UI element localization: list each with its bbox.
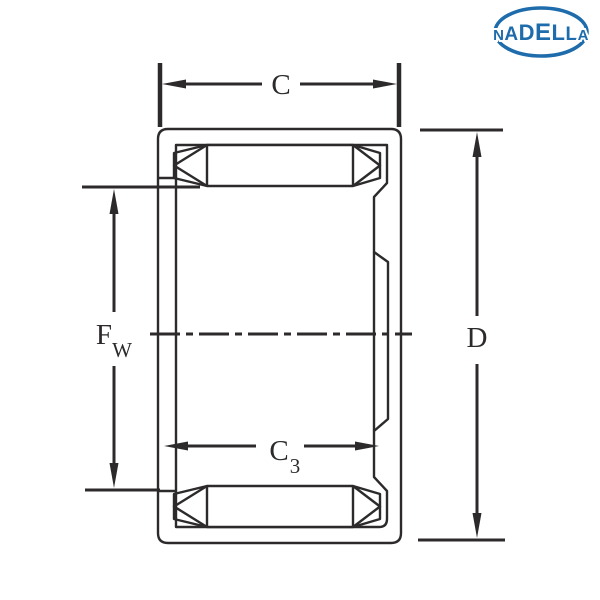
needle-roller-bottom — [174, 486, 380, 527]
bearing-cup-section — [158, 129, 401, 543]
roller-right-end — [353, 486, 380, 527]
dimension-label-c3-sub: 3 — [290, 454, 301, 478]
roller-right-end — [353, 145, 380, 186]
roller-body — [207, 145, 353, 186]
roller-left-end — [174, 145, 207, 186]
arrow-right-icon — [373, 80, 397, 89]
dimension-label-fw: F — [96, 319, 112, 351]
dimension-label-d: D — [467, 322, 488, 354]
technical-drawing: C D F W C 3 NADE — [0, 0, 600, 600]
dimension-c3: C 3 — [164, 435, 379, 478]
roller-body — [207, 486, 353, 527]
drawing-canvas: C D F W C 3 NADE — [0, 0, 600, 600]
arrow-right-icon — [355, 442, 379, 451]
dimension-label-c: C — [271, 69, 290, 101]
arrow-up-icon — [110, 189, 119, 214]
arrow-up-icon — [473, 132, 482, 157]
dimension-label-fw-sub: W — [112, 338, 132, 362]
needle-roller-top — [174, 145, 380, 186]
logo-text: NADELLA — [493, 19, 589, 46]
arrow-left-icon — [162, 80, 186, 89]
dimension-d: D — [418, 130, 505, 540]
arrow-down-icon — [473, 513, 482, 538]
nadella-logo: NADELLA — [493, 8, 589, 56]
arrow-down-icon — [110, 463, 119, 488]
roller-left-end — [174, 486, 207, 527]
dimension-c: C — [160, 63, 399, 127]
dimension-label-c3: C — [269, 435, 288, 467]
cup-shell — [158, 129, 401, 543]
